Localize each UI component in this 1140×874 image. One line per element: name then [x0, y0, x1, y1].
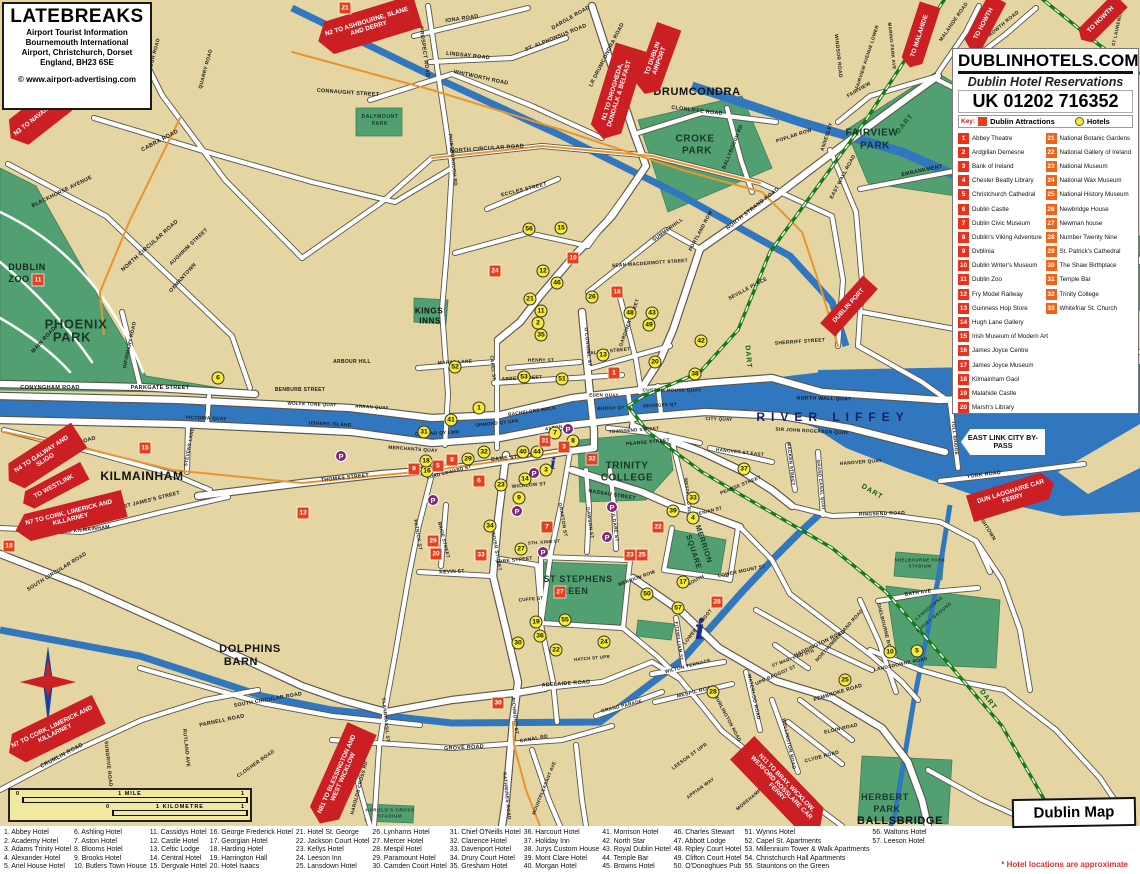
attraction-name: Dublin Civic Museum — [972, 220, 1030, 227]
attraction-number-badge: 4 — [958, 175, 969, 186]
attraction-name: Hugh Lane Gallery — [972, 319, 1024, 326]
hotel-legend-item: 27. Mercer Hotel — [372, 838, 446, 847]
attraction-list-item: 27Newman house — [1046, 216, 1134, 230]
attraction-list-item: 16James Joyce Centre — [958, 344, 1046, 358]
hotel-legend-item: 14. Central Hotel — [150, 855, 207, 864]
attraction-list-item: 15Irish Museum of Modern Art — [958, 330, 1046, 344]
hotel-legend-item: 23. Kellys Hotel — [296, 846, 370, 855]
hotel-marker-56: 56 — [523, 223, 536, 236]
attractions-list: 1Abbey Theatre2Ardgillan Demesne3Bank of… — [958, 131, 1133, 415]
hotel-marker-51: 51 — [556, 373, 569, 386]
attraction-number-badge: 9 — [958, 246, 969, 257]
parking-icon: P — [511, 505, 523, 517]
attraction-number-badge: 22 — [1046, 147, 1057, 158]
hotel-marker-28: 28 — [707, 686, 720, 699]
hotel-legend-item: 35. Gresham Hotel — [450, 863, 521, 872]
attraction-marker-25: 25 — [637, 550, 648, 561]
latebreaks-line: Airport, Christchurch, Dorset — [6, 48, 148, 58]
attraction-number-badge: 14 — [958, 317, 969, 328]
hotel-legend-item: 49. Clifton Court Hotel — [674, 855, 742, 864]
panel-subtitle: Dublin Hotel Reservations — [958, 75, 1133, 89]
hotel-legend-column: 31. Chief O'Neills Hotel32. Clarence Hot… — [450, 829, 521, 872]
attraction-number-badge: 27 — [1046, 218, 1057, 229]
attraction-list-item: 19Malahide Castle — [958, 386, 1046, 400]
attraction-number-badge: 15 — [958, 331, 969, 342]
attraction-name: The Shaw Birthplace — [1060, 262, 1117, 269]
latebreaks-info-box: LATEBREAKS Airport Tourist Information B… — [2, 2, 152, 110]
hotel-marker-39: 39 — [667, 505, 680, 518]
attraction-number-badge: 20 — [958, 402, 969, 413]
attraction-marker-23: 23 — [625, 550, 636, 561]
attraction-list-item: 22National Gallery of Ireland — [1046, 145, 1134, 159]
attraction-list-item: 7Dublin Civic Museum — [958, 216, 1046, 230]
map-scale-bar: 0 1 MILE 1 0 1 KILOMETRE 1 — [8, 788, 252, 822]
hotel-marker-26: 26 — [586, 291, 599, 304]
attraction-number-badge: 5 — [958, 189, 969, 200]
attraction-marker-33: 33 — [476, 550, 487, 561]
attraction-marker-6: 6 — [474, 476, 485, 487]
attraction-name: Ardgillan Demesne — [972, 149, 1024, 156]
hotel-legend-item: 3. Adams Trinity Hotel — [4, 846, 71, 855]
hotel-marker-14: 14 — [519, 473, 532, 486]
attraction-list-item: 33Whitefriar St. Church — [1046, 301, 1134, 315]
hotel-legend-item: 10. Butlers Town House — [74, 863, 147, 872]
latebreaks-website: © www.airport-advertising.com — [6, 75, 148, 84]
attraction-list-item: 11Dublin Zoo — [958, 273, 1046, 287]
hotel-legend-item: 31. Chief O'Neills Hotel — [450, 829, 521, 838]
hotel-legend-item: 13. Celtic Lodge — [150, 846, 207, 855]
attraction-marker-8: 8 — [447, 455, 458, 466]
hotel-legend-item: 55. Stauntons on the Green — [745, 863, 870, 872]
attraction-name: Whitefriar St. Church — [1060, 305, 1117, 312]
attraction-number-badge: 2 — [958, 147, 969, 158]
attraction-number-badge: 13 — [958, 303, 969, 314]
attraction-marker-3: 3 — [559, 442, 570, 453]
hotel-legend-item: 15. Dergvale Hotel — [150, 863, 207, 872]
hotel-legend-item: 6. Ashling Hotel — [74, 829, 147, 838]
attraction-marker-15: 15 — [140, 443, 151, 454]
hotel-marker-18: 18 — [420, 455, 433, 468]
hotel-legend-item: 11. Cassidys Hotel — [150, 829, 207, 838]
panel-phone-number: UK 01202 716352 — [958, 90, 1133, 113]
parking-icon: P — [606, 501, 618, 513]
attraction-list-item: 31Temple Bar — [1046, 273, 1134, 287]
attraction-list-item: 12Fry Model Railway — [958, 287, 1046, 301]
attractions-column-1: 1Abbey Theatre2Ardgillan Demesne3Bank of… — [958, 131, 1046, 415]
hotel-marker-44: 44 — [531, 446, 544, 459]
hotel-legend-item: 12. Castle Hotel — [150, 838, 207, 847]
hotel-marker-32: 32 — [478, 446, 491, 459]
hotel-marker-19: 19 — [530, 616, 543, 629]
attraction-list-item: 8Dublin's Viking Adventure — [958, 230, 1046, 244]
attraction-name: Malahide Castle — [972, 390, 1016, 397]
hotel-reservations-panel: DUBLINHOTELS.COM Dublin Hotel Reservatio… — [952, 48, 1139, 414]
attraction-marker-11: 11 — [33, 275, 44, 286]
attraction-list-item: 20Marsh's Library — [958, 401, 1046, 415]
hotel-marker-42: 42 — [695, 335, 708, 348]
hotel-legend-item: 9. Brooks Hotel — [74, 855, 147, 864]
attraction-number-badge: 23 — [1046, 161, 1057, 172]
hotel-legend-item: 51. Wynns Hotel — [745, 829, 870, 838]
attraction-number-badge: 31 — [1046, 274, 1057, 285]
dublin-map-page: IONA ROADST. ALPHONSUS ROADDARGLE ROADLI… — [0, 0, 1140, 874]
attraction-number-badge: 1 — [958, 133, 969, 144]
hotel-legend-item: 25. Lansdown Hotel — [296, 863, 370, 872]
attraction-number-badge: 17 — [958, 360, 969, 371]
scale-km-row: 0 1 KILOMETRE 1 — [14, 805, 246, 818]
hotel-legend-column: 16. George Frederick Hotel17. Georgian H… — [210, 829, 293, 872]
hotel-marker-12: 12 — [537, 265, 550, 278]
hotel-legend-column: 21. Hotel St. George22. Jackson Court Ho… — [296, 829, 370, 872]
attraction-name: National Museum — [1060, 163, 1108, 170]
attraction-marker-20: 20 — [431, 549, 442, 560]
map-title: Dublin Map — [1033, 803, 1114, 821]
attraction-number-badge: 26 — [1046, 204, 1057, 215]
attraction-list-item: 28Number Twenty Nine — [1046, 230, 1134, 244]
key-label: Key: — [961, 118, 975, 125]
attraction-number-badge: 16 — [958, 345, 969, 356]
attraction-list-item: 24National Wax Museum — [1046, 174, 1134, 188]
hotel-marker-24: 24 — [598, 636, 611, 649]
attraction-name: National Gallery of Ireland — [1060, 149, 1132, 156]
attraction-number-badge: 28 — [1046, 232, 1057, 243]
attraction-number-badge: 10 — [958, 260, 969, 271]
attraction-list-item: 30The Shaw Birthplace — [1046, 259, 1134, 273]
hotel-marker-25: 25 — [839, 674, 852, 687]
hotel-marker-36: 36 — [534, 630, 547, 643]
hotel-legend-item: 18. Harding Hotel — [210, 846, 293, 855]
hotel-legend-item: 52. Capel St. Apartments — [745, 838, 870, 847]
hotel-legend-item: 44. Temple Bar — [602, 855, 671, 864]
hotel-marker-40: 40 — [517, 446, 530, 459]
latebreaks-line: Bournemouth International — [6, 38, 148, 48]
attraction-marker-28: 28 — [712, 597, 723, 608]
attraction-name: Chester Beatty Library — [972, 177, 1034, 184]
attraction-number-badge: 21 — [1046, 133, 1057, 144]
attraction-list-item: 21National Botanic Gardens — [1046, 131, 1134, 145]
attraction-name: Trinity College — [1060, 291, 1099, 298]
hotel-legend-strip: 1. Abbey Hotel2. Academy Hotel3. Adams T… — [0, 826, 1140, 874]
attraction-name: Dublin Zoo — [972, 276, 1002, 283]
hotel-key-icon — [1075, 117, 1084, 126]
attraction-number-badge: 29 — [1046, 246, 1057, 257]
hotel-legend-item: 46. Charles Stewart — [674, 829, 742, 838]
hotel-marker-48: 48 — [624, 307, 637, 320]
hotel-legend-item: 39. Mont Clare Hotel — [524, 855, 599, 864]
attraction-marker-16: 16 — [612, 287, 623, 298]
attraction-number-badge: 11 — [958, 274, 969, 285]
parking-icon: P — [427, 494, 439, 506]
hotel-marker-1: 1 — [473, 402, 486, 415]
attraction-name: Fry Model Railway — [972, 291, 1023, 298]
hotel-legend-item: 16. George Frederick Hotel — [210, 829, 293, 838]
hotel-marker-6: 6 — [212, 372, 225, 385]
attraction-number-badge: 3 — [958, 161, 969, 172]
parking-icon: P — [537, 546, 549, 558]
attraction-name: Kilmainham Gaol — [972, 376, 1019, 383]
parking-icon: P — [601, 531, 613, 543]
attraction-name: National History Museum — [1060, 191, 1129, 198]
hotel-marker-41: 41 — [445, 414, 458, 427]
attraction-key-icon — [978, 117, 987, 126]
attraction-marker-30: 30 — [493, 698, 504, 709]
hotel-legend-item: 22. Jackson Court Hotel — [296, 838, 370, 847]
hotel-legend-item: 2. Academy Hotel — [4, 838, 71, 847]
attraction-number-badge: 8 — [958, 232, 969, 243]
hotel-legend-item: 56. Waltons Hotel — [872, 829, 926, 838]
scale-mile-label: 1 MILE — [14, 791, 246, 797]
key-hotels-label: Hotels — [1087, 117, 1110, 126]
hotel-marker-4: 4 — [687, 512, 700, 525]
attraction-name: National Botanic Gardens — [1060, 135, 1131, 142]
hotel-marker-20: 20 — [649, 356, 662, 369]
attraction-marker-1: 1 — [609, 368, 620, 379]
attraction-marker-22: 22 — [653, 522, 664, 533]
hotel-legend-item: 43. Royal Dublin Hotel — [602, 846, 671, 855]
attraction-name: Temple Bar — [1060, 276, 1091, 283]
attraction-name: Dublin Writer's Museum — [972, 262, 1037, 269]
attraction-list-item: 5Christchurch Cathedral — [958, 188, 1046, 202]
hotel-location-footnote: * Hotel locations are approximate — [1001, 860, 1128, 869]
hotel-marker-33: 33 — [687, 492, 700, 505]
hotel-marker-17: 17 — [677, 576, 690, 589]
hotel-legend-column: 36. Harcourt Hotel37. Holiday Inn38. Jur… — [524, 829, 599, 872]
hotel-marker-10: 10 — [884, 646, 897, 659]
hotel-marker-55: 55 — [559, 614, 572, 627]
attraction-list-item: 4Chester Beatty Library — [958, 174, 1046, 188]
attraction-number-badge: 6 — [958, 204, 969, 215]
attraction-list-item: 9Dvblinia — [958, 245, 1046, 259]
attraction-marker-29: 29 — [428, 536, 439, 547]
attraction-name: Marsh's Library — [972, 404, 1014, 411]
attraction-name: St. Patrick's Cathedral — [1060, 248, 1121, 255]
hotel-marker-50: 50 — [641, 588, 654, 601]
latebreaks-line: England, BH23 6SE — [6, 58, 148, 68]
hotel-legend-item: 24. Leeson Inn — [296, 855, 370, 864]
hotel-marker-38: 38 — [689, 368, 702, 381]
hotel-legend-item: 47. Abbott Lodge — [674, 838, 742, 847]
attraction-name: Dublin Castle — [972, 206, 1009, 213]
attraction-name: Dublin's Viking Adventure — [972, 234, 1042, 241]
attraction-marker-7: 7 — [542, 522, 553, 533]
hotel-legend-column: 41. Morrison Hotel42. North Star43. Roya… — [602, 829, 671, 872]
hotel-marker-31: 31 — [418, 426, 431, 439]
hotel-legend-item: 54. Christchurch Hall Apartments — [745, 855, 870, 864]
hotel-marker-11: 11 — [535, 305, 548, 318]
attraction-list-item: 13Guinness Hop Store — [958, 301, 1046, 315]
hotel-marker-46: 46 — [551, 277, 564, 290]
hotel-legend-column: 46. Charles Stewart47. Abbott Lodge48. R… — [674, 829, 742, 872]
attraction-number-badge: 30 — [1046, 260, 1057, 271]
attraction-name: Dvblinia — [972, 248, 994, 255]
attraction-name: Number Twenty Nine — [1060, 234, 1118, 241]
attraction-list-item: 25National History Museum — [1046, 188, 1134, 202]
hotel-legend-item: 40. Morgan Hotel — [524, 863, 599, 872]
hotel-legend-item: 8. Blooms Hotel — [74, 846, 147, 855]
hotel-legend-item: 36. Harcourt Hotel — [524, 829, 599, 838]
hotel-legend-column: 51. Wynns Hotel52. Capel St. Apartments5… — [745, 829, 870, 872]
hotel-legend-item: 7. Aston Hotel — [74, 838, 147, 847]
attraction-list-item: 17James Joyce Museum — [958, 358, 1046, 372]
panel-site-title: DUBLINHOTELS.COM — [958, 51, 1133, 74]
attraction-list-item: 1Abbey Theatre — [958, 131, 1046, 145]
hotel-marker-15: 15 — [555, 222, 568, 235]
hotel-legend-item: 17. Georgian Hotel — [210, 838, 293, 847]
attraction-number-badge: 25 — [1046, 189, 1057, 200]
road-banner-east-link: EAST LINK CITY BY-PASS — [961, 429, 1045, 455]
attraction-list-item: 6Dublin Castle — [958, 202, 1046, 216]
attraction-list-item: 3Bank of Ireland — [958, 159, 1046, 173]
hotel-marker-23: 23 — [495, 479, 508, 492]
attraction-name: Abbey Theatre — [972, 135, 1012, 142]
hotel-legend-item: 28. Mespil Hotel — [372, 846, 446, 855]
hotel-marker-57: 57 — [672, 602, 685, 615]
latebreaks-title: LATEBREAKS — [6, 6, 148, 28]
hotel-legend-column: 6. Ashling Hotel7. Aston Hotel8. Blooms … — [74, 829, 147, 872]
attraction-marker-24: 24 — [490, 266, 501, 277]
attraction-name: Guinness Hop Store — [972, 305, 1028, 312]
attraction-marker-21: 21 — [340, 3, 351, 14]
hotel-legend-item: 26. Lynhams Hotel — [372, 829, 446, 838]
attraction-number-badge: 18 — [958, 374, 969, 385]
attraction-number-badge: 7 — [958, 218, 969, 229]
scale-one: 1 — [241, 804, 244, 810]
attraction-list-item: 10Dublin Writer's Museum — [958, 259, 1046, 273]
hotel-legend-item: 37. Holiday Inn — [524, 838, 599, 847]
attraction-list-item: 23National Museum — [1046, 159, 1134, 173]
attraction-number-badge: 19 — [958, 388, 969, 399]
hotel-legend-item: 33. Davenport Hotel — [450, 846, 521, 855]
hotel-legend-item: 19. Harrington Hall — [210, 855, 293, 864]
attraction-name: Newman house — [1060, 220, 1103, 227]
map-key: Key: Dublin Attractions Hotels — [958, 115, 1133, 128]
attractions-column-2: 21National Botanic Gardens22National Gal… — [1046, 131, 1134, 415]
attraction-marker-9: 9 — [409, 464, 420, 475]
parking-icon: P — [335, 450, 347, 462]
hotel-legend-item: 32. Clarence Hotel — [450, 838, 521, 847]
hotel-marker-3: 3 — [540, 464, 553, 477]
hotel-marker-37: 37 — [738, 463, 751, 476]
hotel-marker-27: 27 — [515, 543, 528, 556]
hotel-marker-9: 9 — [513, 492, 526, 505]
hotel-marker-29: 29 — [462, 453, 475, 466]
attraction-number-badge: 24 — [1046, 175, 1057, 186]
attraction-name: James Joyce Centre — [972, 347, 1028, 354]
attraction-name: Newbridge House — [1060, 206, 1109, 213]
hotel-legend-item: 34. Drury Court Hotel — [450, 855, 521, 864]
attraction-name: National Wax Museum — [1060, 177, 1122, 184]
hotel-legend-columns: 1. Abbey Hotel2. Academy Hotel3. Adams T… — [4, 829, 1136, 872]
hotel-marker-52: 52 — [449, 361, 462, 374]
hotel-marker-35: 35 — [535, 329, 548, 342]
attraction-list-item: 2Ardgillan Demesne — [958, 145, 1046, 159]
attraction-list-item: 29St. Patrick's Cathedral — [1046, 245, 1134, 259]
attraction-marker-31: 31 — [540, 436, 551, 447]
hotel-legend-item: 4. Alexander Hotel — [4, 855, 71, 864]
hotel-legend-item: 57. Leeson Hotel — [872, 838, 926, 847]
hotel-legend-item: 53. Millennium Tower & Walk Apartments — [745, 846, 870, 855]
attraction-marker-32: 32 — [587, 454, 598, 465]
attraction-number-badge: 32 — [1046, 289, 1057, 300]
hotel-marker-13: 13 — [597, 349, 610, 362]
attraction-number-badge: 33 — [1046, 303, 1057, 314]
hotel-marker-30: 30 — [512, 637, 525, 650]
attraction-marker-5: 5 — [433, 461, 444, 472]
hotel-legend-item: 38. Jurys Custom House — [524, 846, 599, 855]
attraction-marker-13: 13 — [298, 508, 309, 519]
attraction-name: Irish Museum of Modern Art — [972, 333, 1048, 340]
attraction-list-item: 18Kilmainham Gaol — [958, 372, 1046, 386]
scale-km-label: 1 KILOMETRE — [64, 804, 296, 810]
hotel-legend-column: 56. Waltons Hotel57. Leeson Hotel — [872, 829, 926, 872]
attraction-name: Christchurch Cathedral — [972, 191, 1035, 198]
hotel-legend-item: 50. O'Donoghues Pub — [674, 863, 742, 872]
attraction-list-item: 14Hugh Lane Gallery — [958, 315, 1046, 329]
attraction-list-item: 32Trinity College — [1046, 287, 1134, 301]
map-title-box: Dublin Map — [1012, 797, 1136, 828]
hotel-legend-item: 20. Hotel Isaacs — [210, 863, 293, 872]
hotel-legend-item: 42. North Star — [602, 838, 671, 847]
attraction-marker-18: 18 — [4, 541, 15, 552]
hotel-marker-53: 53 — [518, 371, 531, 384]
hotel-marker-22: 22 — [550, 644, 563, 657]
parking-icon: P — [562, 423, 574, 435]
tourist-info-icon: i — [695, 616, 706, 644]
hotel-legend-item: 45. Browns Hotel — [602, 863, 671, 872]
scale-one: 1 — [241, 791, 244, 797]
hotel-marker-34: 34 — [484, 520, 497, 533]
attraction-name: James Joyce Museum — [972, 362, 1034, 369]
hotel-legend-item: 1. Abbey Hotel — [4, 829, 71, 838]
attraction-marker-27: 27 — [555, 587, 566, 598]
hotel-legend-item: 41. Morrison Hotel — [602, 829, 671, 838]
hotel-legend-item: 48. Ripley Court Hotel — [674, 846, 742, 855]
attraction-marker-10: 10 — [568, 253, 579, 264]
hotel-legend-item: 5. Ariel House Hotel — [4, 863, 71, 872]
hotel-legend-item: 21. Hotel St. George — [296, 829, 370, 838]
attraction-list-item: 26Newbridge House — [1046, 202, 1134, 216]
hotel-legend-item: 29. Paramount Hotel — [372, 855, 446, 864]
attraction-name: Bank of Ireland — [972, 163, 1014, 170]
attraction-number-badge: 12 — [958, 289, 969, 300]
latebreaks-line: Airport Tourist Information — [6, 28, 148, 38]
hotel-marker-5: 5 — [911, 645, 924, 658]
hotel-marker-49: 49 — [643, 319, 656, 332]
hotel-marker-2: 2 — [532, 317, 545, 330]
hotel-marker-21: 21 — [524, 293, 537, 306]
key-attractions-label: Dublin Attractions — [990, 117, 1055, 126]
hotel-legend-column: 26. Lynhams Hotel27. Mercer Hotel28. Mes… — [372, 829, 446, 872]
hotel-legend-column: 11. Cassidys Hotel12. Castle Hotel13. Ce… — [150, 829, 207, 872]
hotel-legend-column: 1. Abbey Hotel2. Academy Hotel3. Adams T… — [4, 829, 71, 872]
hotel-legend-item: 30. Camden Court Hotel — [372, 863, 446, 872]
